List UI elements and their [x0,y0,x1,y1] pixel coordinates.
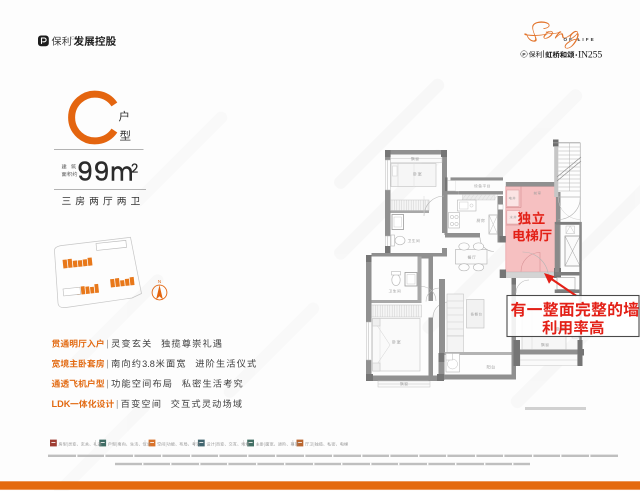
svg-text:3.8: 3.8 [142,359,155,369]
svg-text:LDK: LDK [52,399,71,409]
svg-text:OF LIFE: OF LIFE [564,37,596,42]
svg-text:IN255: IN255 [578,50,602,61]
